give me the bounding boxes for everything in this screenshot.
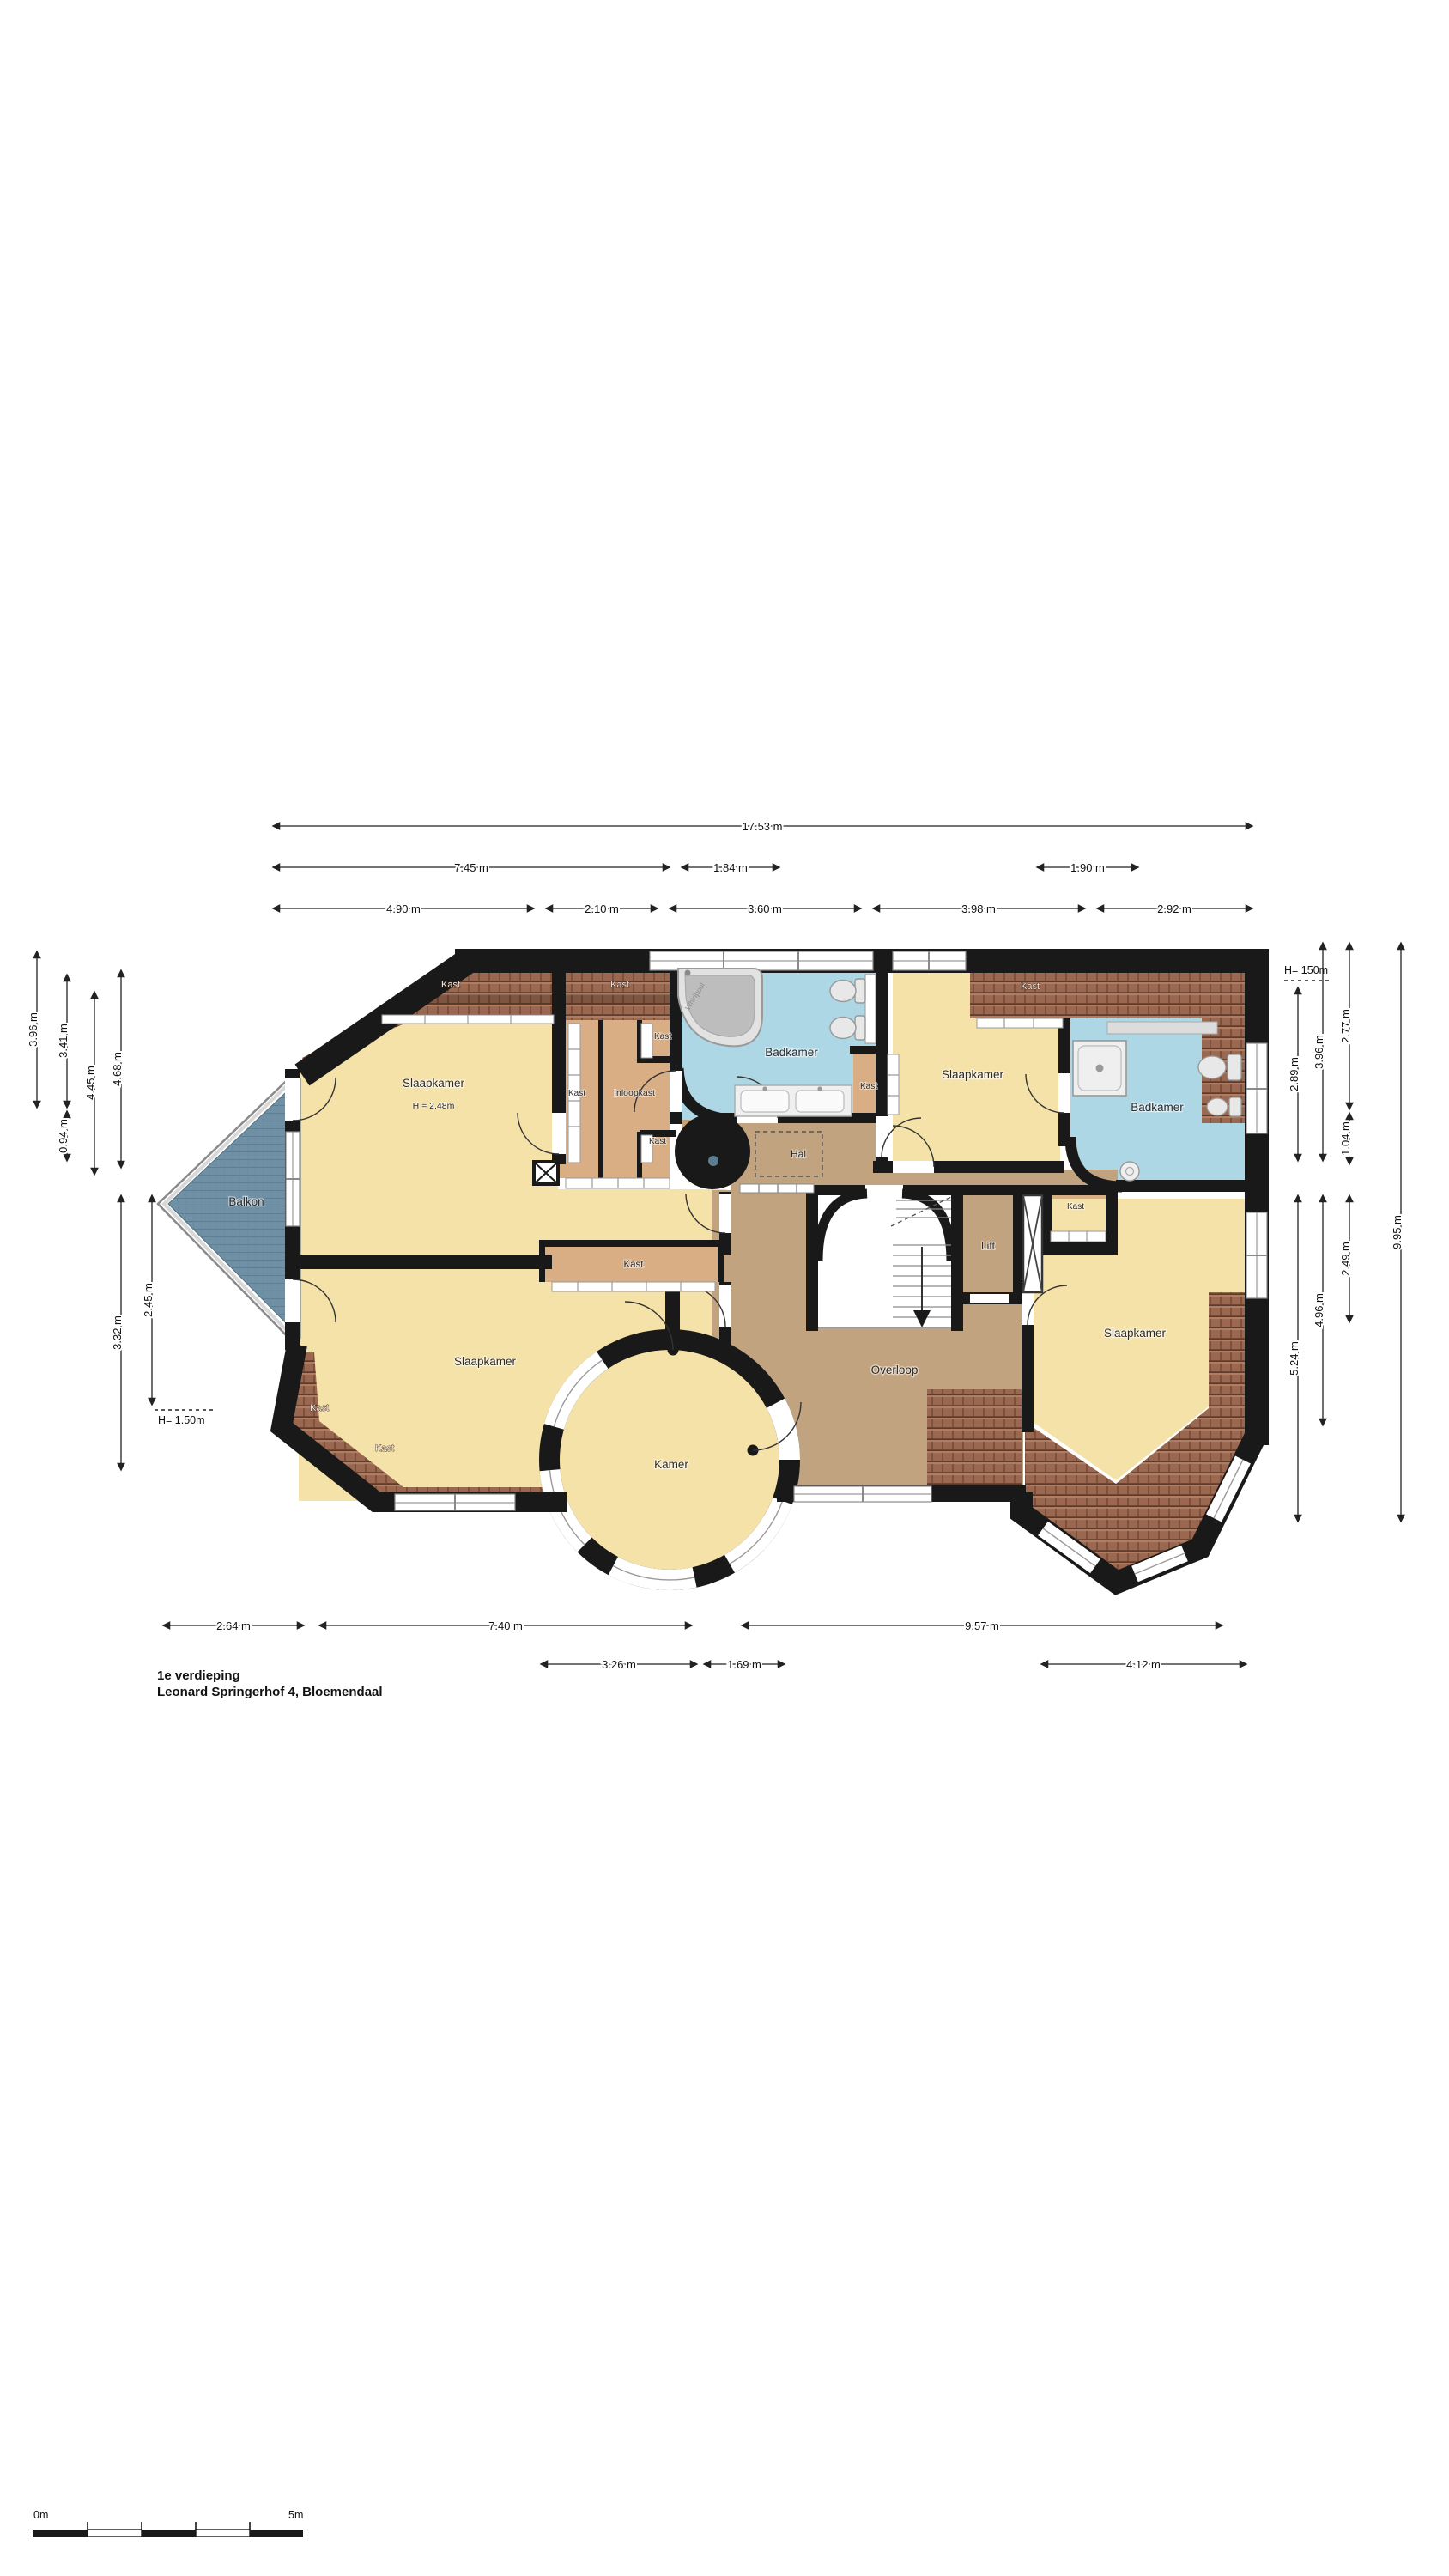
bidet-bowl (1207, 1098, 1228, 1115)
dim-label: 2.64 m (216, 1619, 251, 1632)
dim-label: 3.41 m (57, 1024, 70, 1058)
dim-label: 3.32 m (111, 1315, 124, 1350)
window (395, 1494, 515, 1510)
label-kast-roof: Kast (1021, 981, 1040, 992)
floorplan-drawing: Slaapkamer H = 2.48m Slaapkamer Slaapkam… (0, 0, 1449, 2576)
scale-bar: 0m 5m (33, 2509, 303, 2537)
roof-overloop-corner (927, 1389, 1022, 1496)
label-kast: Kast (1067, 1202, 1084, 1212)
roof-ne (970, 973, 1255, 1018)
dim-label: 1.84 m (713, 861, 748, 874)
label-kamer: Kamer (654, 1458, 688, 1471)
floorplan-page: Slaapkamer H = 2.48m Slaapkamer Slaapkam… (0, 0, 1449, 2576)
label-badkamer-east: Badkamer (1131, 1101, 1184, 1114)
bidet-tank (1229, 1097, 1241, 1116)
dim-label: 5.24 m (1288, 1341, 1300, 1376)
note-h150-right: H= 150m (1284, 964, 1328, 976)
label-kast: Kast (860, 1082, 877, 1091)
label-hal: Hal (791, 1148, 806, 1160)
kast-niche-shelf (888, 1054, 899, 1115)
dim-label: 4.45 m (84, 1066, 97, 1100)
window-interior (740, 1184, 814, 1193)
window (286, 1132, 300, 1226)
plan-floor-title: 1e verdieping (157, 1668, 240, 1683)
label-inloopkast: Inloopkast (614, 1088, 655, 1098)
dim-label: 4.90 m (386, 902, 421, 915)
washbasin-counter (735, 1085, 852, 1116)
dim-label: 3.60 m (748, 902, 782, 915)
dim-label: 2.89 m (1288, 1057, 1300, 1091)
dim-label: 2.45 m (142, 1283, 155, 1317)
dim-label: 1.69 m (727, 1658, 761, 1671)
plan-address: Leonard Springerhof 4, Bloemendaal (157, 1685, 383, 1699)
window (893, 951, 966, 970)
dim-label: 7.40 m (488, 1619, 523, 1632)
dim-label: 1.04 m (1339, 1121, 1352, 1156)
wall-niche (865, 975, 876, 1043)
title-block: 1e verdieping Leonard Springerhof 4, Blo… (157, 1668, 383, 1699)
room-slaapkamer-ne2 (900, 1018, 1058, 1173)
label-slaapkamer-nw: Slaapkamer (403, 1077, 465, 1090)
label-kast-roof: Kast (441, 980, 460, 990)
shower-drain (708, 1156, 718, 1166)
label-slaapkamer-ne: Slaapkamer (942, 1068, 1004, 1081)
label-kast-roof: Kast (375, 1443, 394, 1454)
dim-label: 3.96 m (27, 1012, 39, 1047)
label-lift: Lift (981, 1240, 996, 1252)
label-slaapkamer-se: Slaapkamer (1104, 1327, 1167, 1340)
window (1246, 1043, 1267, 1133)
dim-label: 1.90 m (1070, 861, 1105, 874)
label-kast: Kast (568, 1089, 585, 1098)
label-slaapkamer-sw: Slaapkamer (454, 1355, 517, 1368)
label-kast: Kast (654, 1032, 671, 1042)
dim-label: 17.53 m (743, 820, 783, 833)
balcony (158, 1069, 300, 1348)
dim-label: 2.10 m (585, 902, 619, 915)
note-h150-left: H= 1.50m (158, 1414, 205, 1426)
dim-label: 0.94 m (57, 1119, 70, 1153)
window (650, 951, 873, 970)
tower-wall-stub (665, 1288, 680, 1341)
dim-label: 2.92 m (1157, 902, 1191, 915)
dim-label: 4.96 m (1313, 1293, 1325, 1327)
dim-label: 3.98 m (961, 902, 996, 915)
toilet-tank (1228, 1054, 1241, 1080)
dim-label: 4.12 m (1126, 1658, 1161, 1671)
kast-box-shelf (552, 1282, 715, 1291)
dim-label: 3.26 m (602, 1658, 636, 1671)
dim-label: 2.49 m (1339, 1242, 1352, 1276)
scale-start-label: 0m (33, 2509, 48, 2521)
window (1246, 1212, 1267, 1298)
dim-label: 3.96 m (1313, 1035, 1325, 1069)
dim-label: 7.45 m (454, 861, 488, 874)
pedestal-sink (1120, 1162, 1139, 1181)
label-kast-roof: Kast (310, 1403, 329, 1413)
label-overloop: Overloop (871, 1364, 919, 1376)
label-badkamer-center: Badkamer (765, 1046, 818, 1059)
label-kast-roof: Kast (610, 980, 629, 990)
window (794, 1486, 931, 1502)
shaft-x-box (534, 1162, 558, 1184)
toilet-bowl (1198, 1056, 1226, 1078)
dim-label: 2.77 m (1339, 1009, 1352, 1043)
dim-label: 4.68 m (111, 1052, 124, 1086)
balcony-floor (168, 1078, 300, 1338)
scale-end-label: 5m (288, 2509, 303, 2521)
dim-label: 9.95 m (1391, 1215, 1404, 1249)
label-kast: Kast (649, 1137, 666, 1146)
kast-lift-shelf (1051, 1231, 1106, 1242)
closet-front (566, 1178, 670, 1188)
label-room-height: H = 2.48m (413, 1101, 455, 1111)
bath2-counter (1107, 1022, 1217, 1034)
label-balkon: Balkon (228, 1195, 264, 1208)
label-kast: Kast (623, 1260, 644, 1270)
lift-shaft (1023, 1195, 1042, 1292)
dim-label: 9.57 m (965, 1619, 999, 1632)
